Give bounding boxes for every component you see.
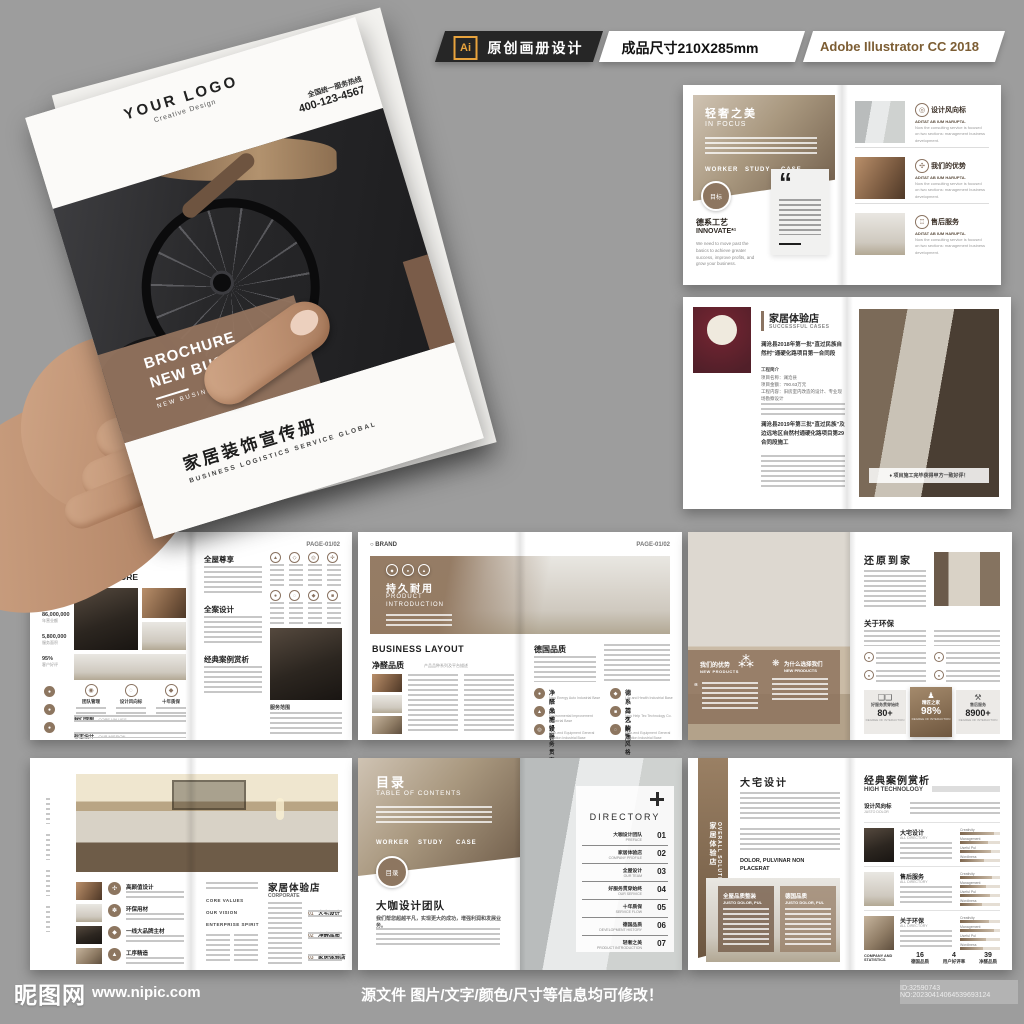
solution-title: 大宅设计 [740,774,788,789]
text-placeholder [740,828,840,852]
spread-toc: 目录 TABLE OF CONTENTS WORKER STUDY CASE 目… [358,758,682,970]
directory-panel: DIRECTORY 大咖设计团队 PREFACE 01 家居体验店 COMPAN… [576,786,674,952]
photo-kitchen: ♦ 项目施工完毕获得甲方一致好评！ [859,309,999,497]
overlay1-title: 我们的优势 [700,660,730,669]
quote-card: “ [771,169,829,255]
enterprise-spirit-label: ENTERPRISE SPIRIT [206,922,259,927]
cases-intro-label: 工程简介 [761,367,779,373]
store-item-title: 一线大品牌主材 [126,927,165,935]
craft-subtitle: INNOVATE*¹ [696,228,736,235]
leaf-icon: ✽ [108,904,121,917]
overlay-card-1: 全屋品质整装 JUSTO DOLOR, PUL [718,886,774,952]
service-icon: ◎ [534,724,545,735]
banner-mini-icon: ◆ [386,564,398,576]
cases-para2: 澜沧县2019年第三批“直过民族”及边远地区自然村通硬化路项目第29合同段施工 [761,421,845,447]
text-placeholder [772,678,828,700]
network-icon: ⚒ [956,693,1000,702]
stat-num: 4 [940,952,968,959]
text-placeholder [779,199,821,235]
photo-gray-livingroom [142,622,186,650]
toc-entry-cn: 家居体验店 [586,849,642,856]
text-placeholder [270,564,284,586]
toc-entry-en: COMPANY PROFILE [586,856,642,860]
case-row-caption: ALL DIRECTORY [900,836,928,840]
wall-lamp [276,798,284,820]
craft-icon: ◆ [610,688,621,699]
header-size-tab: 成品尺寸210X285mm [599,31,805,62]
text-placeholder [705,137,817,155]
spread-store: ✣ 高颜值设计 ✽ 环保用材 ◆ 一线大品牌主材 ▲ 工序精造 CORE VAL… [30,758,352,970]
window-frame [172,780,246,810]
overlay-quote-icon: “ [694,682,698,691]
text-placeholder [946,652,1000,664]
medal-icon: ◆ [108,926,121,939]
grid-caption: High-end Equipment General Aviation Indu… [625,731,679,741]
divider [864,866,1000,867]
photo-bedroom: 我们的优势 NEW PRODUCTS ⁂ “ ❋ 为什么选择我们 NEW PRO… [688,532,850,740]
text-placeholder [126,935,184,944]
bullet-icon: ● [934,670,944,680]
grid-icon: ◆ [308,590,319,601]
quote-icon: “ [779,169,792,195]
stat-card-value: 98% [910,706,952,717]
toc-entry-num: 06 [657,921,666,930]
case-photo [864,828,894,862]
stat-card-value: 80+ [864,708,906,718]
craft-body: We need to move past the basics to achie… [696,241,756,268]
cases-title: 家居体验店 [769,310,819,325]
text-placeholder [204,616,262,644]
card1-title: 全屋品质整装 [723,892,756,900]
praise-badge: ♦ 项目施工完毕获得甲方一致好评！ [869,468,989,483]
section-title-2: 全案设计 [204,604,234,615]
store-item-title: 高颜值设计 [126,883,154,891]
text-placeholder [308,602,322,624]
stat-card-caption: DEGREE OF INTERACTION [956,718,1000,722]
label-en: JUSTO DOLOR [864,810,889,814]
grid-icon: ● [270,590,281,601]
toc-title: 目录 [376,772,406,791]
stat-label: 客户好评 [42,662,58,668]
business-layout-heading: BUSINESS LAYOUT [372,644,464,654]
solution-subhead2: PLACERAT [740,866,770,872]
stat-label: 服务面积 [42,640,66,646]
focus-item-3-title: 售后服务 [931,217,959,227]
divider [864,910,1000,911]
stat-label: 年营业额 [42,618,70,624]
thumb-nail [285,305,323,341]
card2-title: 德国品质 [785,892,807,900]
title-accent-bar [761,311,764,331]
feature-title: 十年质保 [154,699,188,705]
quality-icon: ● [534,688,545,699]
cases-line-name: 项目名称：澜沧县 [761,375,797,381]
banner-mini-icon: ● [402,564,414,576]
progress-bar [960,850,1000,853]
cases-para1: 澜沧县2018年第一批“直过民族自然村”通硬化路项目第一合同段 [761,341,845,359]
text-placeholder [156,707,186,715]
photo-stairwell [855,101,905,143]
toc-entry: 家居体验店 COMPANY PROFILE 02 [582,848,668,864]
text-placeholder [270,602,284,624]
focus-item-1-title: 设计风向标 [931,105,966,115]
our-vision-label: OUR VISION [206,910,238,915]
grid-icon: ■ [327,590,338,601]
german-quality-title: 德国品质 [534,644,566,655]
ai-logo-icon: Ai [454,36,478,60]
bullet-icon: ● [934,652,944,662]
stat-card-caption: DEGREE OF INTERACTION [910,717,952,721]
photo-wood [372,674,402,692]
watermark-site-logo: 昵图网 [14,976,86,1010]
devices-icon: ❑❑ [864,693,906,702]
bullet-icon: ● [864,652,874,662]
text-placeholder [74,715,186,723]
text-placeholder [386,614,452,628]
text-placeholder [900,842,952,862]
case-photo [864,872,894,906]
photo-wood-hall [270,628,342,700]
text-placeholder [408,674,458,732]
toc-entry: 十年质保 SERVICE FLOW 05 [582,902,668,918]
grid-icon: ◎ [308,552,319,563]
directory-heading: DIRECTORY [576,812,674,822]
store-subtitle: CORPORATE [268,893,300,899]
molecule-icon: ⁂ [738,652,754,672]
home-title: 还原到家 [864,552,912,567]
text-placeholder [946,670,1000,682]
toc-tab-worker: WORKER [376,840,409,846]
cases-analysis-sub: HIGH TECHNOLOGY [864,787,923,793]
grid-caption: New Energy Auto Industrial Base [549,696,603,701]
text-placeholder [126,891,184,900]
section-title-3: 经典案例赏析 [204,654,249,665]
toc-entry-en: PRODUCT INTRODUCTION [586,946,642,950]
header-design-label: 原创画册设计 [488,38,584,58]
poster-background: Ai 原创画册设计 成品尺寸210X285mm Adobe Illustrato… [0,0,1024,1024]
feature-title: 设计风向标 [114,699,148,705]
stat-card-2: ♟ 精匠之家 98% DEGREE OF INTERACTION [910,687,952,737]
focus-item-caption: ADITAT AB IUM HARUPTA. [915,231,966,236]
stat-num: 16 [906,952,934,959]
id-badge: ID:32590743 NO:20230414064539693124 [900,980,1018,1004]
core-values-label: CORE VALUES [206,898,244,903]
text-placeholder [740,792,840,822]
toc-entry: 好服务贯穿始终 OUR SERVICE 04 [582,884,668,900]
focus-item-caption: ADITAT AB IUM HARUPTA. [915,119,966,124]
watermark-site-url: www.nipic.com [92,984,201,1001]
stat-card-caption: DEGREE OF INTERACTION [864,718,906,722]
label-cn: 设计风向标 [864,802,892,810]
focus-item-body: Now the consulting service is focused on… [915,237,987,256]
toc-entry: 德国品质 DEVELOPMENT HISTORY 06 [582,920,668,936]
toc-entry-num: 03 [657,867,666,876]
photo-thumb [76,926,102,944]
focus-title: 轻奢之美 [705,105,757,121]
toc-entry-num: 07 [657,939,666,948]
brand-logo: ○ BRAND [370,542,397,548]
header-design-tab: Ai 原创画册设计 [435,31,603,62]
text-placeholder [126,957,184,965]
progress-bar [960,894,1000,897]
photo-loft [855,157,905,199]
focus-item-2-title: 我们的优势 [931,161,966,171]
overlay1-caption: NEW PRODUCTS [700,669,739,674]
focus-item-caption: ADITAT AB IUM HARUPTA. [915,175,966,180]
text-placeholder [900,930,952,948]
text-placeholder [785,908,831,946]
text-placeholder [268,902,302,964]
toc-entry-cn: 好服务贯穿始终 [586,885,642,892]
eco-section-title: 关于环保 [864,618,894,629]
progress-bar [960,947,1000,950]
progress-bar [960,876,1000,879]
advantage-icon: ✣ [915,159,929,173]
toc-tab-study: STUDY [418,840,443,846]
text-placeholder [876,670,926,682]
toc-entry: 大咖设计团队 PREFACE 01 [582,830,668,846]
grid-icon: ◇ [289,552,300,563]
avatar: ● [44,686,55,697]
text-placeholder [270,712,342,734]
toc-entry-en: OUR TEAM [586,874,642,878]
overlay-card-2: 德国品质 JUSTO DOLOR, PUL [780,886,836,952]
id-badge-text: ID:32590743 NO:20230414064539693124 [900,985,1018,999]
toc-tab-case: CASE [456,840,477,846]
photo-hallway [934,552,1000,606]
toc-entry: 轻奢之美 PRODUCT INTRODUCTION 07 [582,938,668,953]
stat-card-3: ⚒ 售后服务 8900+ DEGREE OF INTERACTION [956,690,1000,734]
progress-bar [960,841,1000,844]
progress-bar [960,929,1000,932]
header-size-label: 成品尺寸210X285mm [622,38,759,58]
style-icon: ◌ [610,724,621,735]
team-title: 大咖设计团队 [376,898,445,913]
solution-subhead1: DOLOR, PULVINAR NON [740,858,804,864]
globe-icon: ❋ [772,658,780,669]
toc-entry: 全屋设计 OUR TEAM 03 [582,866,668,882]
photo-moon-room [693,307,751,373]
spread-cases: 家居体验店 SUCCESSFUL CASES 澜沧县2018年第一批“直过民族自… [683,297,1011,509]
text-placeholder [864,570,926,610]
stat-card-1: ❑❑ 好服务贯穿始终 80+ DEGREE OF INTERACTION [864,690,906,734]
craft-title: 德系工艺 [696,217,728,228]
progress-bar [960,903,1000,906]
photo-thumb [76,904,102,922]
progress-bar [960,920,1000,923]
photo-livingroom [855,213,905,255]
spread-home: 我们的优势 NEW PRODUCTS ⁂ “ ❋ 为什么选择我们 NEW PRO… [688,532,1012,740]
grid-caption: New Help Tec Technology Co. [625,714,679,719]
text-placeholder [308,954,342,964]
progress-bar [960,885,1000,888]
text-placeholder [327,602,341,624]
feature-title: 团队管理 [74,699,108,705]
case-photo [864,916,894,950]
banner-title: 持久耐用 [386,580,434,595]
store-title: 家居体验店 [268,880,321,894]
header-software-tab: Adobe Illustrator CC 2018 [803,31,1005,62]
design-icon: ✣ [108,882,121,895]
photo-sofa-small [372,716,402,734]
product-subcaption: 产品品种系列及平台描述 [424,663,468,669]
heading-accent-bar [932,786,1000,792]
text-placeholder [702,682,758,712]
focus-tab-worker: WORKER [705,167,738,173]
avatar: ● [44,704,55,715]
spread-solution: 家居体验店 OVERALL SOLUTION 大宅设计 DOLOR, PULVI… [688,758,1012,970]
overlay2-title: 为什么选择我们 [784,660,823,668]
text-placeholder [604,644,670,682]
grid-icon: ◌ [289,590,300,601]
toc-entry-num: 01 [657,831,666,840]
text-placeholder [761,455,845,487]
icon-grid: ▲ ◇ ◎ ✣ ● ◌ ◆ ■ [270,552,342,622]
spread-product: ○ BRAND PAGE-01/02 ◆ ● ▲ 持久耐用 PRODUCT IN… [358,532,682,740]
text-placeholder [327,564,341,586]
praise-badge-text: 项目施工完毕获得甲方一致好评！ [893,472,968,479]
photo-empty-room [74,654,186,680]
text-placeholder [204,566,262,594]
toc-entry-cn: 德国品质 [586,921,642,928]
shield-icon: ◆ [165,684,178,697]
photo-loft-interior: 全屋品质整装 JUSTO DOLOR, PUL 德国品质 JUSTO DOLOR… [706,878,840,962]
toc-entry-cn: 大咖设计团队 [586,831,642,838]
text-placeholder [206,882,258,891]
case-row-caption: ALL DIRECTORY [900,924,928,928]
toc-entry-en: SERVICE FLOW [586,910,642,914]
vertical-text-placeholder [46,834,50,860]
text-placeholder [534,656,596,682]
store-item-title: 工序精造 [126,949,148,957]
text-placeholder [289,564,303,586]
cases-line-scope: 工程内容：旧房室内改造的设计、专业现场勘察设计 [761,389,845,403]
toc-subtitle: TABLE OF CONTENTS [376,790,462,797]
stat-name: 用户好评率 [940,959,968,965]
progress-bar [960,859,1000,862]
banner-photo-livingroom: ◆ ● ▲ 持久耐用 PRODUCT INTRODUCTION [370,556,670,634]
footer-notice: 源文件 图片/文字/颜色/尺寸等信息均可修改！ [262,984,762,1005]
text-placeholder [723,908,769,946]
text-placeholder [910,802,1000,816]
grid-icon: ✣ [327,552,338,563]
overlay2-caption: NEW PRODUCTS [784,668,817,673]
toc-entry-num: 04 [657,885,666,894]
toc-entry-cn: 全屋设计 [586,867,642,874]
grid-caption: High-end Equipment General Aviation Indu… [549,731,603,741]
focus-item-body: Now the consulting service is focused on… [915,181,987,200]
page-number: PAGE-01/02 [636,542,670,548]
store-item-title: 环保用材 [126,905,148,913]
card1-caption: JUSTO DOLOR, PUL [723,900,762,905]
focus-item-body: Now the consulting service is focused on… [915,125,987,144]
bullet-icon: ● [864,670,874,680]
banner-sub2: INTRODUCTION [386,602,444,608]
text-placeholder [876,652,926,664]
toc-entry-en: DEVELOPMENT HISTORY [586,928,642,932]
vertical-text-placeholder [46,798,50,824]
text-placeholder [308,910,342,920]
text-placeholder [934,630,1000,646]
grid-caption: Life and Health Industrial Base [625,696,679,701]
text-placeholder [74,732,186,738]
text-placeholder [376,928,500,948]
design-compass-icon: ◎ [915,103,929,117]
focus-tab-study: STUDY [745,167,770,173]
text-placeholder [308,564,322,586]
text-placeholder [204,666,262,694]
grid-caption: Environmental Improvement Industrial Bas… [549,714,603,724]
quote-divider [779,243,801,245]
text-placeholder [900,886,952,906]
photo-bathroom-tower: DIRECTORY 大咖设计团队 PREFACE 01 家居体验店 COMPAN… [520,758,682,970]
text-placeholder [206,934,230,962]
text-placeholder [308,932,342,942]
service-note-title: 服务范围 [270,704,290,711]
goal-badge: 目标 [701,181,731,211]
text-placeholder [289,602,303,624]
progress-bar [960,938,1000,941]
cases-line-amount: 项目金额：790.63万元 [761,382,806,388]
toc-entry-en: PREFACE [586,838,642,842]
tools-icon: ▲ [108,948,121,961]
vertical-text-placeholder [46,870,50,896]
text-placeholder [761,403,845,417]
focus-subtitle: IN FOCUS [705,121,746,128]
avatar: ● [44,722,55,733]
photo-kitchen-small [372,695,402,713]
progress-bar [960,832,1000,835]
durable-icon: ■ [610,706,621,717]
card2-caption: JUSTO DOLOR, PUL [785,900,824,905]
header-software-label: Adobe Illustrator CC 2018 [820,39,979,54]
stats-label: COMPANY AND STATISTICS [864,954,898,962]
cases-subtitle: SUCCESSFUL CASES [769,324,829,330]
spread-focus: 轻奢之美 IN FOCUS WORKER STUDY CASE 目标 “ 德系工… [683,85,1001,285]
toc-entry-num: 02 [657,849,666,858]
photo-thumb [76,882,102,900]
toc-entry-cn: 十年质保 [586,903,642,910]
banner-mini-icon: ▲ [418,564,430,576]
case-row-caption: ALL DIRECTORY [900,880,928,884]
divider [855,203,989,204]
stat-name: 净醛品质 [974,959,1002,965]
photo-bathroom-panorama [76,774,338,872]
text-placeholder [464,674,514,732]
aftersale-icon: ♖ [915,215,929,229]
grid-icon: ▲ [270,552,281,563]
toc-entry-num: 05 [657,903,666,912]
text-placeholder [126,913,184,922]
cases-analysis-title: 经典案例赏析 [864,772,930,787]
vertical-text-placeholder [46,906,50,932]
banner-sub1: PRODUCT [386,594,423,600]
ai-logo-text: Ai [460,42,471,54]
toc-badge: 目录 [376,856,408,888]
moon-lamp [707,315,737,345]
divider [855,147,989,148]
photo-loft-room [142,588,186,618]
text-placeholder [864,630,926,646]
toc-entry-en: OUR SERVICE [586,892,642,896]
text-placeholder [234,934,258,962]
toc-entry-cn: 轻奢之美 [586,939,642,946]
section-title-1: 全屋尊享 [204,554,234,565]
page-number: PAGE-01/02 [306,542,340,548]
text-placeholder [376,806,492,824]
stat-name: 德国品质 [906,959,934,965]
house-icon: ▲ [534,706,545,717]
